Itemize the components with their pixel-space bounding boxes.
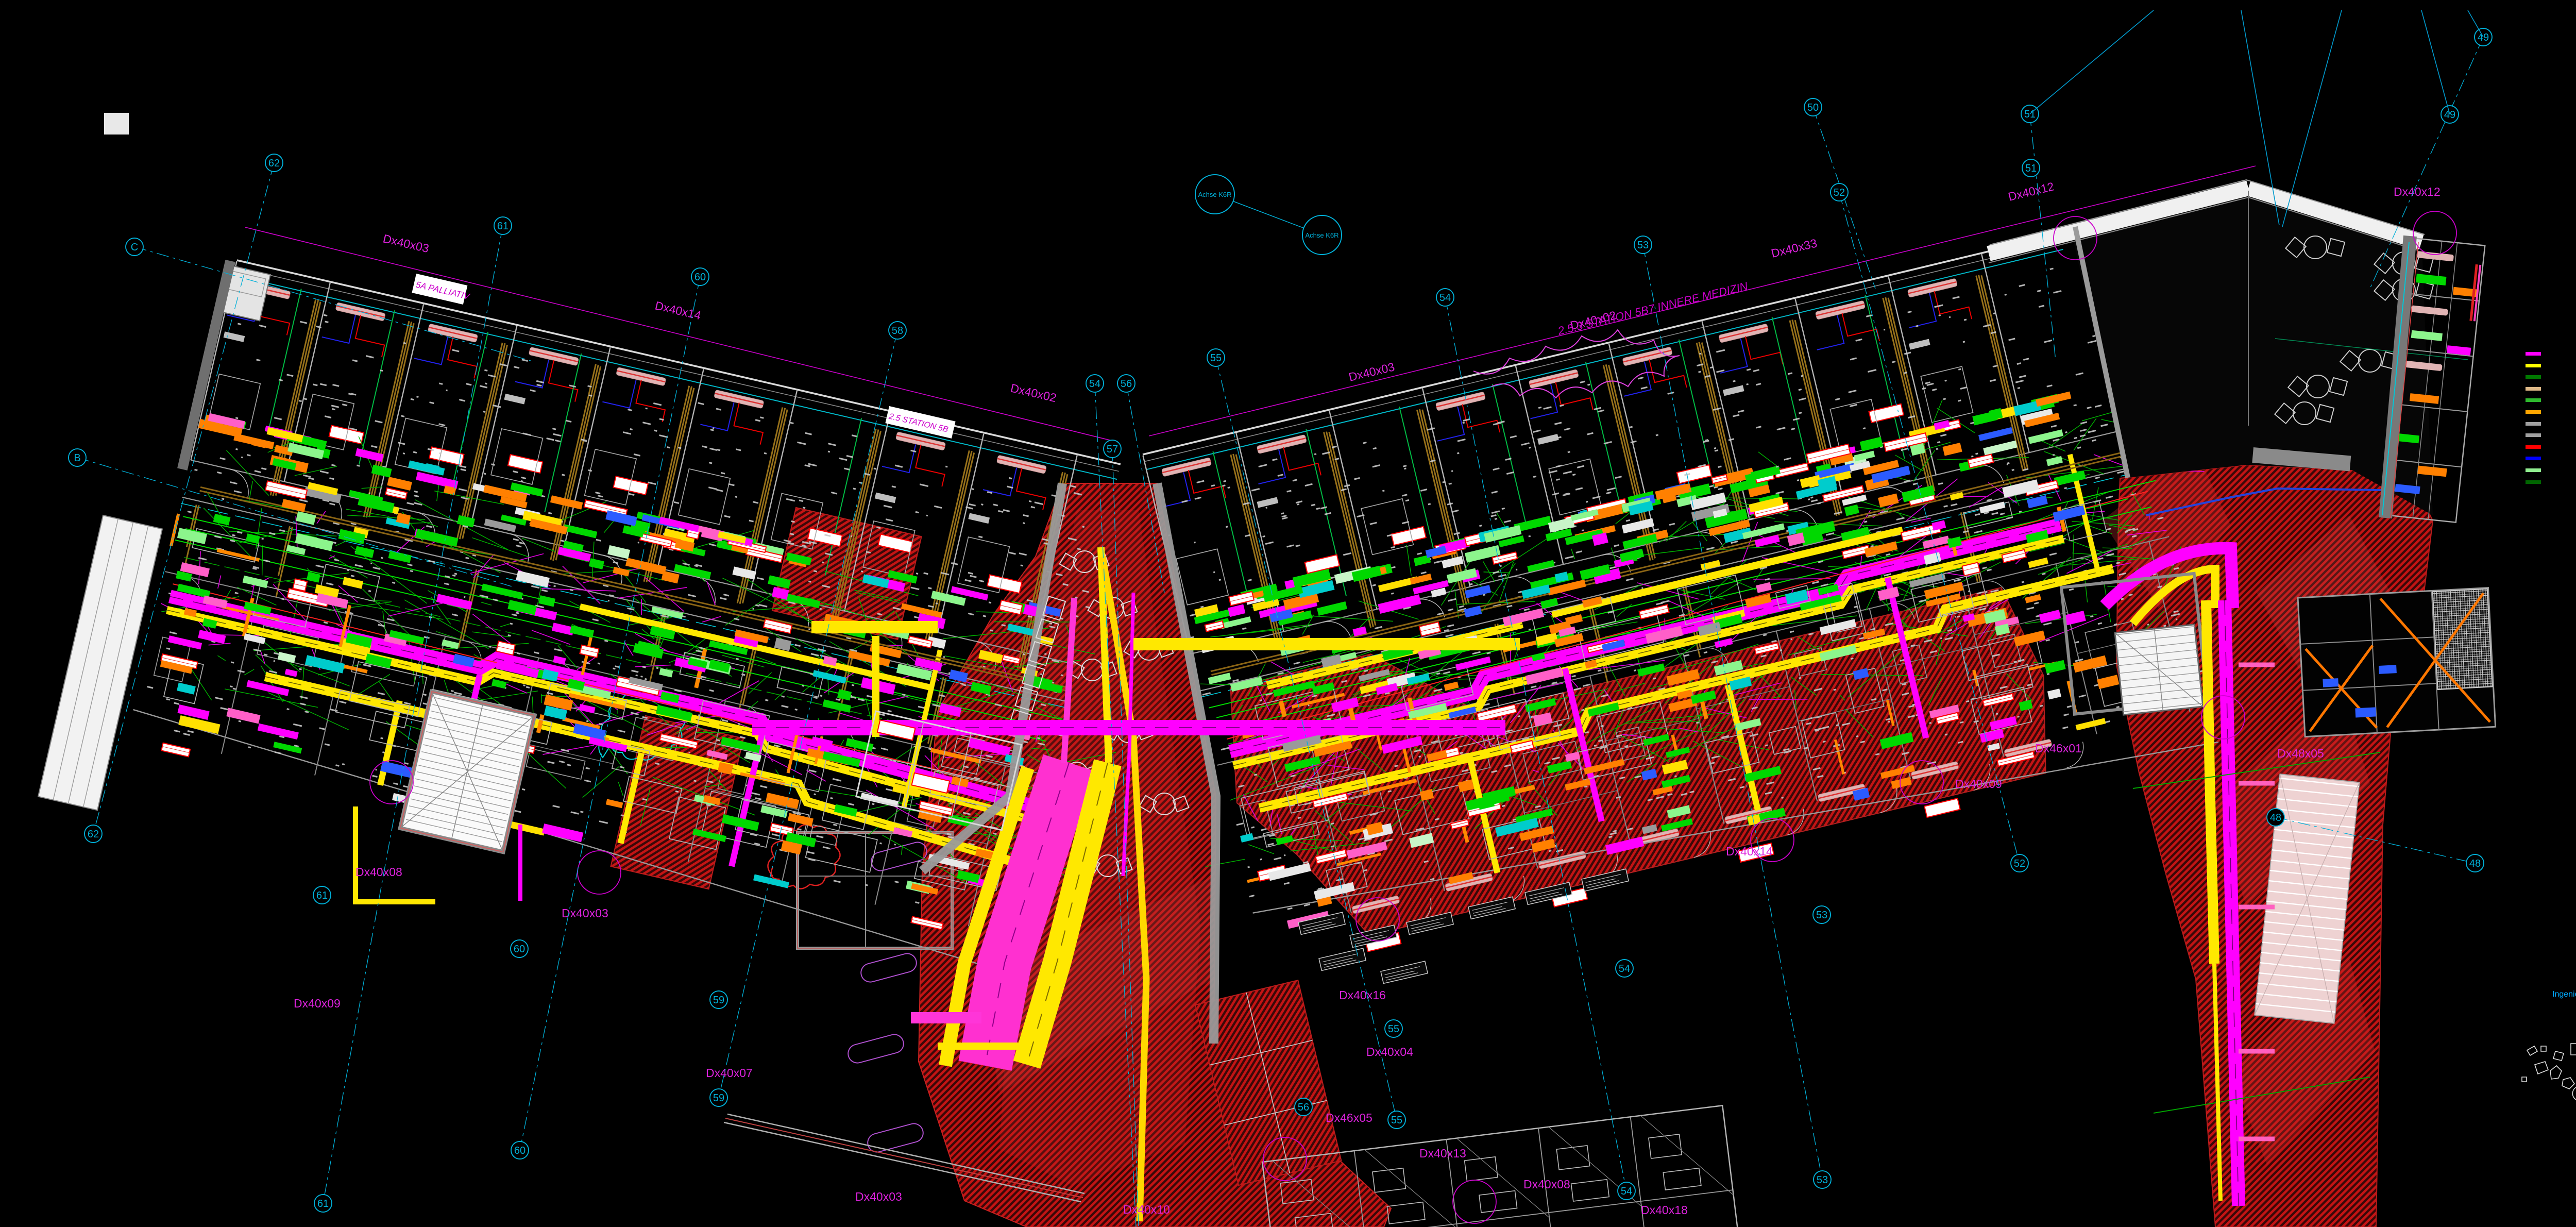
svg-text:Dx40x08: Dx40x08 [355, 865, 402, 879]
svg-text:Dx40x08: Dx40x08 [1523, 1178, 1570, 1191]
svg-text:57: 57 [1107, 444, 1118, 455]
svg-text:Achse K6R: Achse K6R [1198, 191, 1231, 198]
svg-text:61: 61 [317, 1198, 329, 1209]
svg-text:60: 60 [514, 1145, 526, 1156]
svg-text:62: 62 [88, 829, 99, 840]
svg-text:49: 49 [2478, 32, 2489, 43]
svg-text:56: 56 [1121, 378, 1132, 390]
svg-text:Dx48x05: Dx48x05 [2277, 747, 2324, 760]
svg-text:61: 61 [316, 890, 328, 901]
svg-text:Dx46x05: Dx46x05 [1326, 1111, 1372, 1124]
svg-text:60: 60 [694, 272, 706, 283]
svg-text:B: B [74, 452, 80, 464]
svg-text:60: 60 [514, 944, 525, 955]
svg-text:Dx40x03: Dx40x03 [855, 1190, 902, 1203]
svg-text:Dx40x16: Dx40x16 [1339, 988, 1386, 1002]
svg-text:61: 61 [497, 221, 509, 232]
svg-text:Achse K6R: Achse K6R [1305, 231, 1338, 239]
svg-text:52: 52 [1834, 187, 1845, 198]
svg-text:53: 53 [1637, 240, 1649, 251]
svg-text:53: 53 [1816, 910, 1827, 921]
svg-text:48: 48 [2270, 812, 2281, 823]
svg-text:54: 54 [1439, 292, 1451, 304]
svg-text:Dx46x01: Dx46x01 [2035, 742, 2082, 755]
svg-text:51: 51 [2025, 163, 2037, 174]
svg-text:Dx40x18: Dx40x18 [1641, 1203, 1688, 1217]
svg-text:Dx40x10: Dx40x10 [1123, 1203, 1170, 1216]
svg-text:C: C [131, 242, 138, 253]
svg-text:52: 52 [2014, 858, 2025, 869]
svg-text:Ingenieurbüro Lang GmbH: Ingenieurbüro Lang GmbH [2552, 990, 2576, 999]
svg-text:48: 48 [2469, 858, 2481, 869]
svg-text:54: 54 [1089, 378, 1100, 390]
svg-text:54: 54 [1621, 1186, 1632, 1197]
svg-text:53: 53 [1817, 1174, 1828, 1186]
svg-text:56: 56 [1298, 1102, 1309, 1113]
svg-text:59: 59 [713, 1092, 724, 1104]
svg-text:Dx40x04: Dx40x04 [1366, 1045, 1413, 1058]
svg-text:Dx40x07: Dx40x07 [706, 1066, 753, 1080]
svg-text:Dx40x12: Dx40x12 [2394, 185, 2441, 198]
svg-text:55: 55 [1388, 1023, 1399, 1035]
svg-text:55: 55 [1391, 1115, 1402, 1126]
svg-text:Dx40x14: Dx40x14 [1726, 845, 1773, 858]
svg-text:50: 50 [1807, 102, 1819, 113]
svg-text:58: 58 [892, 325, 903, 337]
svg-text:62: 62 [268, 158, 280, 169]
svg-text:Dx40x09: Dx40x09 [294, 997, 341, 1010]
svg-text:55: 55 [1210, 352, 1222, 364]
svg-text:54: 54 [1619, 963, 1630, 974]
svg-text:49: 49 [2444, 109, 2455, 121]
svg-text:59: 59 [713, 995, 724, 1006]
svg-text:Dx40x13: Dx40x13 [1419, 1147, 1466, 1160]
svg-text:Dx40x09: Dx40x09 [1955, 777, 2002, 791]
